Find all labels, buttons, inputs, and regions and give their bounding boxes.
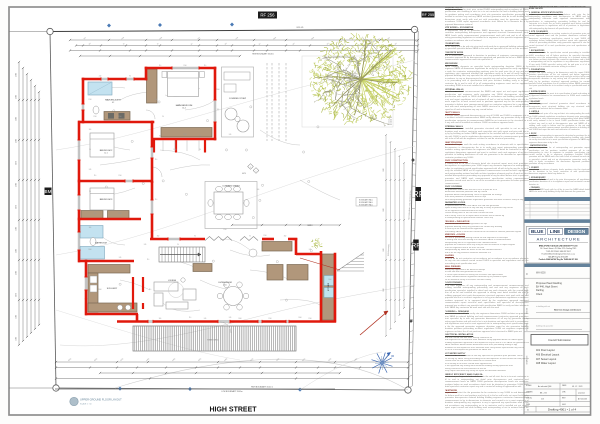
svg-text:2400: 2400 <box>328 279 331 281</box>
svg-text:A R C H I T E C T U R E: A R C H I T E C T U R E <box>537 236 580 241</box>
svg-text:110: 110 <box>147 259 149 261</box>
svg-text:2400: 2400 <box>383 168 385 171</box>
svg-text:1 200: 1 200 <box>388 117 392 119</box>
svg-text:A 8 04 2023: A 8 04 2023 <box>578 397 587 400</box>
svg-text:a: a <box>250 166 251 168</box>
svg-text:360: 360 <box>89 227 92 229</box>
svg-text:406 Electrical Layout: 406 Electrical Layout <box>536 353 560 356</box>
svg-text:COVERED DINING: COVERED DINING <box>222 186 240 188</box>
svg-text:110: 110 <box>155 199 157 201</box>
svg-text:1200: 1200 <box>183 134 186 136</box>
svg-text:4870: 4870 <box>16 205 18 209</box>
svg-text:LIVING ROOM: LIVING ROOM <box>218 282 232 284</box>
svg-text:90: 90 <box>89 149 91 151</box>
svg-text:SACAP Reg No ST40087: SACAP Reg No ST40087 <box>548 255 568 258</box>
svg-text:360: 360 <box>89 129 92 131</box>
svg-text:213: 213 <box>541 398 544 400</box>
svg-text:3600: 3600 <box>16 139 18 143</box>
svg-text:2400: 2400 <box>238 318 241 320</box>
svg-text:110: 110 <box>149 289 151 291</box>
svg-text:360: 360 <box>217 109 220 111</box>
svg-text:Proposed New Dwelling: Proposed New Dwelling <box>536 282 563 285</box>
svg-text:408 Water Layout: 408 Water Layout <box>536 362 556 365</box>
svg-text:90: 90 <box>129 76 131 78</box>
svg-text:a: a <box>256 170 257 172</box>
svg-text:6.2: 6.2 <box>112 102 114 104</box>
svg-text:RF 256: RF 256 <box>260 13 275 18</box>
svg-text:Drafting 4001 • 1 of 4: Drafting 4001 • 1 of 4 <box>548 407 577 411</box>
svg-text:240: 240 <box>229 317 232 319</box>
svg-text:110: 110 <box>155 159 157 161</box>
svg-text:240: 240 <box>204 318 207 320</box>
svg-text:SCULLERY: SCULLERY <box>107 288 118 290</box>
svg-text:building and guarantee: building and guarantee <box>536 325 553 328</box>
svg-text:ERF 445: ERF 445 <box>297 27 304 29</box>
svg-text:2400: 2400 <box>383 248 385 251</box>
svg-text:01: 01 <box>527 409 529 411</box>
svg-text:BATHROOM: BATHROOM <box>95 242 107 245</box>
svg-text:24.6: 24.6 <box>223 285 226 287</box>
svg-text:BM: BM <box>45 189 52 194</box>
svg-text:240: 240 <box>89 169 92 171</box>
svg-text:90: 90 <box>177 244 179 246</box>
svg-text:PrsArch 2044 SACAP Reg No T0: PrsArch 2044 SACAP Reg No T0400-AE ST 45… <box>539 258 578 261</box>
svg-text:2400: 2400 <box>98 289 101 291</box>
svg-text:2400: 2400 <box>216 89 219 91</box>
svg-text:14 Church Street • P.O Box 1: 14 Church Street • P.O Box 123 • Darling… <box>540 247 576 250</box>
svg-text:90: 90 <box>159 136 161 138</box>
svg-text:2400: 2400 <box>16 117 18 121</box>
svg-text:1200: 1200 <box>308 318 311 320</box>
svg-text:1200: 1200 <box>16 337 18 341</box>
svg-text:110: 110 <box>94 175 96 177</box>
svg-text:407 Sewer Layout: 407 Sewer Layout <box>536 358 556 361</box>
svg-text:110: 110 <box>204 65 206 67</box>
svg-text:1 200: 1 200 <box>388 122 392 124</box>
svg-text:90: 90 <box>199 149 201 151</box>
svg-text:Erf 446, High Street: Erf 446, High Street <box>536 286 558 289</box>
svg-text:360: 360 <box>159 318 162 320</box>
svg-text:SCALE 1 : 50: SCALE 1 : 50 <box>80 402 91 405</box>
svg-text:90: 90 <box>162 116 164 118</box>
svg-text:240: 240 <box>144 244 147 246</box>
svg-text:2400: 2400 <box>118 311 121 313</box>
svg-text:1 200: 1 200 <box>388 124 392 126</box>
svg-text:KITCHEN: KITCHEN <box>328 282 330 291</box>
svg-text:LINE: LINE <box>550 229 560 234</box>
svg-text:401 Floor Layout: 401 Floor Layout <box>536 349 555 352</box>
svg-text:2400: 2400 <box>383 288 385 291</box>
svg-text:RF: RF <box>412 189 424 199</box>
svg-text:3600: 3600 <box>16 95 18 99</box>
svg-text:4870: 4870 <box>16 161 18 165</box>
svg-text:RF 255: RF 255 <box>422 13 434 17</box>
svg-text:1200: 1200 <box>118 213 121 215</box>
svg-text:BEDROOM 3: BEDROOM 3 <box>100 199 113 201</box>
svg-text:110: 110 <box>94 213 96 215</box>
svg-text:1200: 1200 <box>183 65 186 67</box>
svg-text:3600: 3600 <box>16 73 18 77</box>
svg-text:2400: 2400 <box>88 249 91 251</box>
svg-text:240: 240 <box>99 76 102 78</box>
svg-text:As indicated @A1: As indicated @A1 <box>538 385 552 388</box>
svg-text:BRELSFORD T/A BLUE LINE DESI: BRELSFORD T/A BLUE LINE DESIGN PTY LTD <box>539 244 578 247</box>
svg-text:240: 240 <box>119 257 122 259</box>
svg-text:1200: 1200 <box>263 235 266 237</box>
svg-text:BLUE: BLUE <box>531 229 544 234</box>
svg-text:2400: 2400 <box>16 249 18 253</box>
svg-text:Client: Client <box>536 293 543 296</box>
svg-text:360: 360 <box>257 189 260 191</box>
svg-text:WH 6000: WH 6000 <box>536 273 546 275</box>
svg-text:MAIN EN-SUITE: MAIN EN-SUITE <box>105 99 121 102</box>
svg-text:3600: 3600 <box>16 271 18 275</box>
svg-text:4870: 4870 <box>16 293 18 297</box>
svg-text:12.1: 12.1 <box>104 153 107 155</box>
svg-text:PATIO: PATIO <box>307 224 313 227</box>
svg-text:LOUNGE: LOUNGE <box>168 280 177 282</box>
svg-text:MAIN BEDROOM: MAIN BEDROOM <box>176 104 193 107</box>
svg-text:COVERED STOEP: COVERED STOEP <box>229 98 247 100</box>
svg-text:360: 360 <box>157 236 160 238</box>
svg-text:110: 110 <box>159 65 161 67</box>
svg-text:New line design architecture: New line design architecture <box>554 308 582 311</box>
svg-text:4470: 4470 <box>242 173 246 175</box>
svg-text:2400: 2400 <box>298 317 301 319</box>
svg-text:2400: 2400 <box>383 208 385 211</box>
svg-text:1200: 1200 <box>16 315 18 319</box>
svg-text:RF: RF <box>411 242 420 249</box>
svg-text:90: 90 <box>89 191 91 193</box>
svg-text:1200: 1200 <box>118 116 121 118</box>
svg-text:UPPER GROUND FLOOR LAYOUT: UPPER GROUND FLOOR LAYOUT <box>80 398 122 402</box>
svg-text:HIGH STREET: HIGH STREET <box>209 407 257 414</box>
svg-text:1200: 1200 <box>154 99 157 101</box>
svg-text:BB + GG: BB + GG <box>540 392 547 394</box>
svg-text:90: 90 <box>249 236 251 238</box>
svg-text:E admin@bluelinedesignarchite: E admin@bluelinedesignarchitecture.co.za <box>542 253 575 256</box>
svg-text:1200: 1200 <box>16 227 18 231</box>
svg-text:90: 90 <box>199 136 201 138</box>
svg-text:90: 90 <box>194 236 196 238</box>
svg-text:3600: 3600 <box>16 183 18 187</box>
svg-text:240: 240 <box>229 134 232 136</box>
svg-text:1 200: 1 200 <box>388 119 392 121</box>
svg-text:N: N <box>391 354 393 358</box>
svg-text:1200: 1200 <box>223 229 226 231</box>
svg-text:to building with out: to building with out <box>536 305 551 308</box>
svg-text:1200: 1200 <box>268 318 271 320</box>
svg-text:Council Submission: Council Submission <box>548 338 571 342</box>
svg-text:4001: 4001 <box>562 404 566 406</box>
svg-text:1200: 1200 <box>88 99 91 101</box>
svg-text:HIGH BOUNDARY 33.01 m: HIGH BOUNDARY 33.01 m <box>251 386 274 389</box>
svg-text:TIMBER DECK: TIMBER DECK <box>207 340 219 342</box>
svg-text:360: 360 <box>284 236 287 238</box>
svg-text:240: 240 <box>309 249 312 251</box>
svg-text:T 022 492 2244 F 086 492 70: T 022 492 2244 F 086 492 7007 <box>546 251 571 253</box>
svg-text:1200: 1200 <box>118 175 121 177</box>
svg-text:110: 110 <box>189 317 191 319</box>
svg-text:16.4: 16.4 <box>182 108 185 110</box>
svg-text:Darling: Darling <box>536 289 544 292</box>
svg-text:DESIGN: DESIGN <box>568 229 586 234</box>
svg-text:1200: 1200 <box>93 116 96 118</box>
svg-text:LOW BOUNDARY 33.01m: LOW BOUNDARY 33.01m <box>221 390 243 393</box>
svg-text:2400: 2400 <box>328 299 331 301</box>
svg-text:08 . 07 . 2023: 08 . 07 . 2023 <box>572 386 582 388</box>
svg-text:BEDROOM 2: BEDROOM 2 <box>100 150 113 152</box>
svg-text:Quantum: Quantum <box>578 391 586 394</box>
svg-text:HIGH BOUNDARY 33.01m: HIGH BOUNDARY 33.01m <box>252 53 274 56</box>
